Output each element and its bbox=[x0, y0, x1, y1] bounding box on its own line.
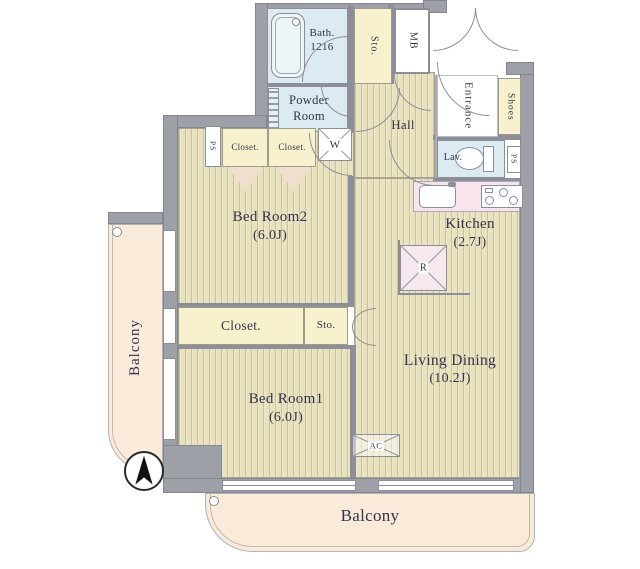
partition-closetrow-bottom bbox=[178, 345, 356, 349]
refrigerator-box: R bbox=[400, 245, 447, 291]
wall-right-top-stub bbox=[506, 62, 534, 75]
meter-box-label: MB bbox=[396, 10, 428, 72]
pipe-space-upper-left-label: PS bbox=[206, 127, 220, 166]
balcony-left-drain bbox=[112, 227, 122, 237]
kitchen-faucet bbox=[448, 182, 456, 187]
kitchen-sink bbox=[419, 185, 456, 208]
closet-a: Closet. bbox=[222, 128, 268, 167]
stove-grill bbox=[485, 188, 493, 193]
compass-needle-icon bbox=[128, 455, 160, 487]
stove-burner-2 bbox=[499, 188, 508, 197]
bedroom1-label: Bed Room1 (6.0J) bbox=[210, 386, 362, 430]
closet-mid: Closet. bbox=[178, 307, 304, 345]
pipe-space-lavatory-label: PS bbox=[508, 147, 520, 172]
entrance-door-arc-right bbox=[475, 8, 518, 51]
wall-right bbox=[520, 62, 534, 493]
floor-plan: Balcony Balcony Bath.1216 PowderRoom bbox=[0, 0, 640, 569]
balcony-bottom-drain bbox=[209, 496, 219, 506]
bedroom2-label: Bed Room2 (6.0J) bbox=[195, 204, 345, 248]
ac-label: AC bbox=[368, 441, 384, 450]
stove-burner-3 bbox=[509, 196, 518, 205]
compass bbox=[124, 451, 164, 491]
balcony-left-label: Balcony bbox=[109, 225, 162, 471]
shoes-box: Shoes bbox=[498, 78, 521, 135]
closet-b-door bbox=[277, 167, 311, 192]
entrance-door-arc-left bbox=[433, 8, 476, 51]
window-left-2 bbox=[163, 308, 176, 344]
window-left-3 bbox=[163, 358, 176, 440]
pipe-space-lavatory: PS bbox=[507, 146, 521, 173]
shoes-label: Shoes bbox=[499, 79, 520, 134]
ac-box: AC bbox=[352, 434, 400, 457]
stove-burner-1 bbox=[485, 196, 494, 205]
toilet-tank bbox=[483, 146, 494, 172]
partition-bedroom2-right bbox=[348, 176, 354, 307]
wall-balcony-divider bbox=[108, 212, 163, 224]
storage-top-label: Sto. bbox=[355, 9, 391, 83]
kitchen-stove bbox=[481, 185, 523, 208]
living-dining-label: Living Dining (10.2J) bbox=[368, 346, 532, 392]
balcony-left: Balcony bbox=[108, 224, 163, 472]
window-left-1 bbox=[163, 230, 176, 292]
storage-mid: Sto. bbox=[304, 307, 348, 345]
lavatory-label: Lav. bbox=[438, 151, 468, 166]
window-bottom-1 bbox=[222, 480, 356, 491]
meter-box: MB bbox=[394, 8, 430, 74]
refrigerator-label: R bbox=[418, 263, 429, 274]
kitchen-boundary-h bbox=[398, 293, 470, 295]
storage-top: Sto. bbox=[354, 8, 392, 84]
pipe-space-upper-left: PS bbox=[205, 126, 221, 167]
balcony-bottom: Balcony bbox=[205, 493, 535, 552]
balcony-bottom-label: Balcony bbox=[206, 498, 534, 534]
window-bottom-2 bbox=[378, 480, 514, 491]
closet-a-door bbox=[229, 167, 263, 192]
